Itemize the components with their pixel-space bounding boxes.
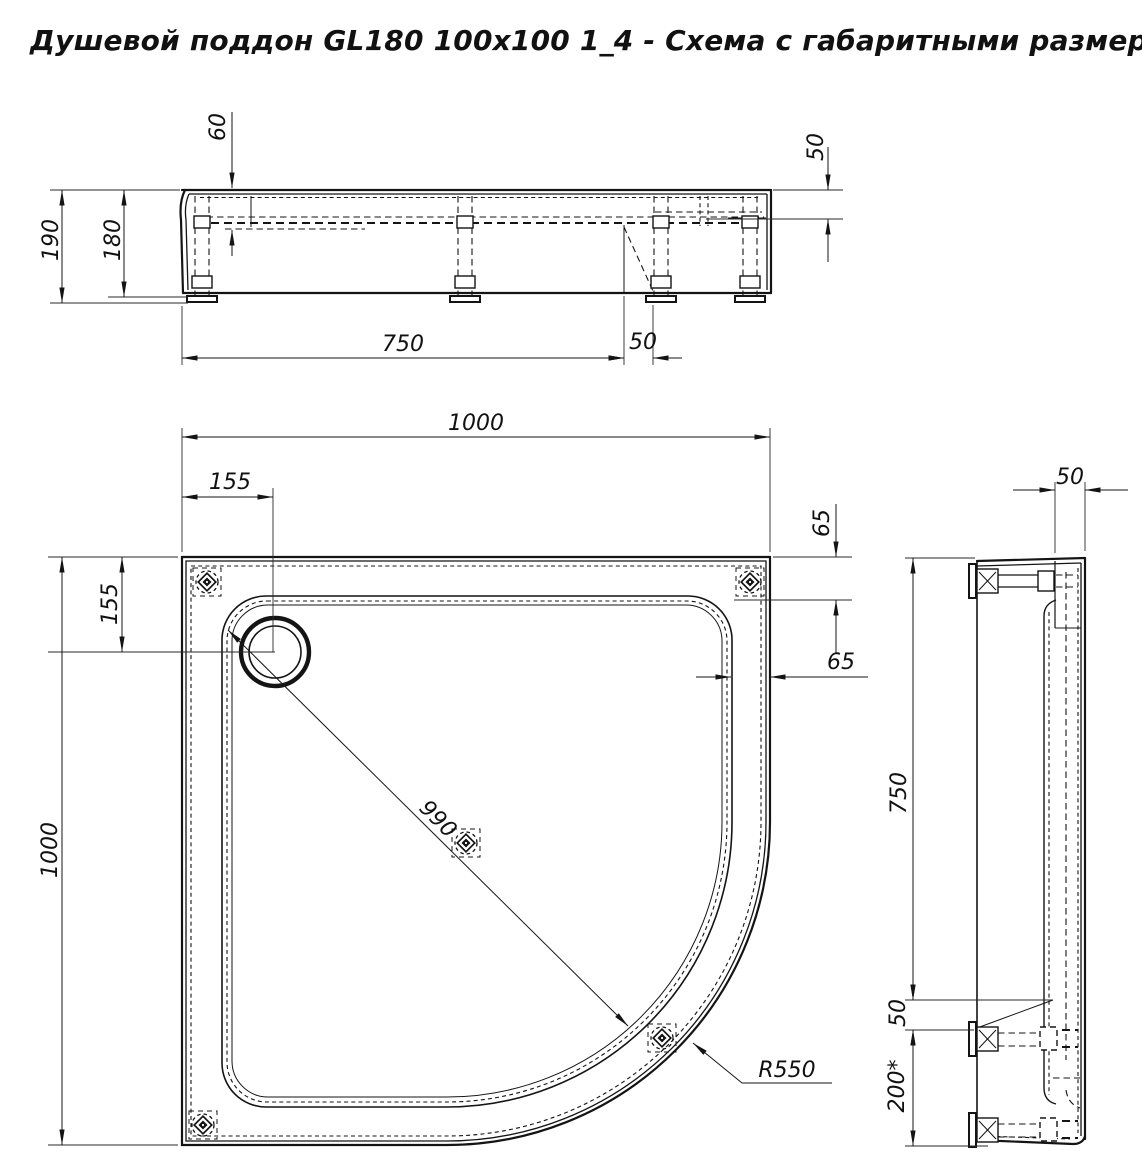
dim-plan-width: 1000 bbox=[448, 411, 504, 436]
side-inner-detail bbox=[977, 561, 1081, 1108]
front-elevation-dimensions: 60 190 180 750 bbox=[39, 112, 843, 365]
front-elevation-view: 60 190 180 750 bbox=[39, 112, 843, 365]
plan-inner-rim bbox=[222, 596, 732, 1107]
dim-front-body-height: 180 bbox=[101, 219, 126, 261]
drawing-canvas: 60 190 180 750 bbox=[0, 0, 1142, 1176]
dim-plan-corner-radius: R550 bbox=[758, 1058, 815, 1083]
dim-front-bowl-depth: 60 bbox=[206, 113, 231, 141]
side-dimensions: 50 750 50 200* bbox=[885, 465, 1128, 1146]
dim-front-rim-depth: 50 bbox=[804, 133, 829, 161]
dim-front-total-height: 190 bbox=[39, 219, 64, 261]
drawing-sheet: Душевой поддон GL180 100x100 1_4 - Схема… bbox=[0, 0, 1142, 1176]
plan-view: 1000 155 155 1000 bbox=[38, 411, 868, 1145]
plan-outline bbox=[182, 557, 770, 1145]
dim-plan-rim-width: 65 bbox=[827, 650, 855, 675]
dim-side-support-span: 750 bbox=[887, 772, 912, 814]
front-elevation-outline bbox=[181, 190, 772, 293]
side-legs bbox=[969, 564, 1078, 1147]
dim-front-leg-offset: 50 bbox=[629, 330, 657, 355]
dim-plan-diagonal: 990 bbox=[414, 796, 461, 843]
front-elevation-hidden-detail bbox=[196, 196, 766, 293]
dim-plan-drain-x: 155 bbox=[209, 470, 251, 495]
plan-feet bbox=[189, 568, 764, 1139]
dim-side-rim-width: 50 bbox=[1056, 465, 1084, 490]
dim-side-support-gap: 50 bbox=[886, 999, 911, 1027]
dim-plan-foot-offset: 65 bbox=[810, 509, 835, 537]
dim-plan-drain-y: 155 bbox=[98, 583, 123, 625]
side-outline bbox=[977, 558, 1085, 1144]
dim-side-drain-zone: 200* bbox=[885, 1060, 910, 1113]
dim-front-leg-span: 750 bbox=[382, 332, 424, 357]
plan-dimensions: 1000 155 155 1000 bbox=[38, 411, 868, 1145]
dim-plan-length: 1000 bbox=[38, 822, 63, 878]
side-view: 50 750 50 200* bbox=[885, 465, 1128, 1147]
